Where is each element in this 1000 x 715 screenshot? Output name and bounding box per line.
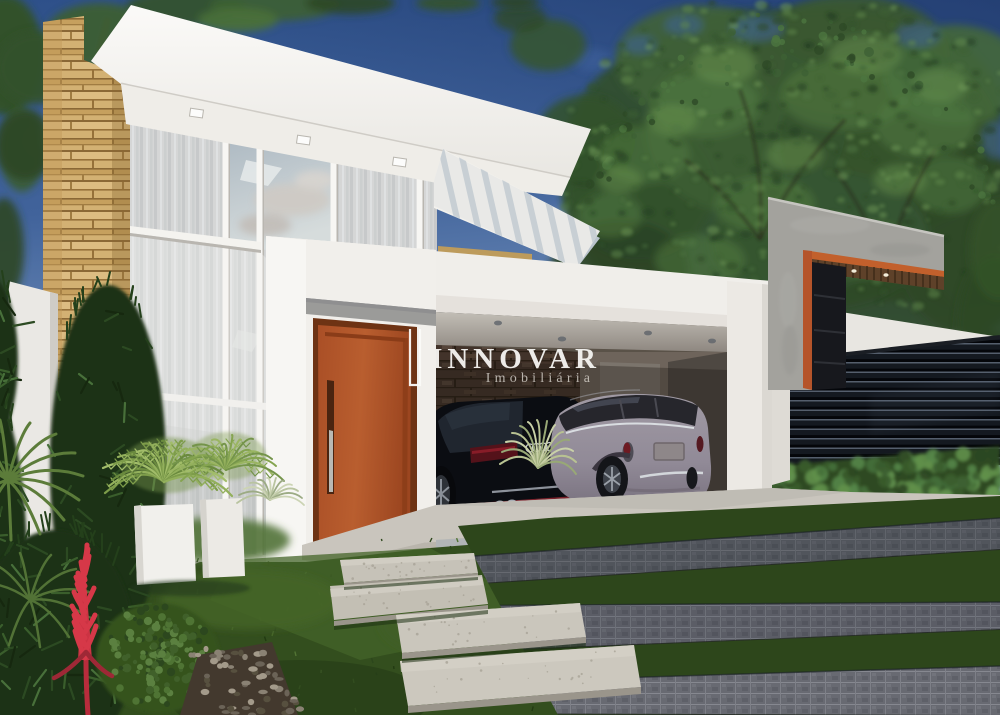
svg-text:Imobiliária: Imobiliária bbox=[486, 371, 594, 386]
